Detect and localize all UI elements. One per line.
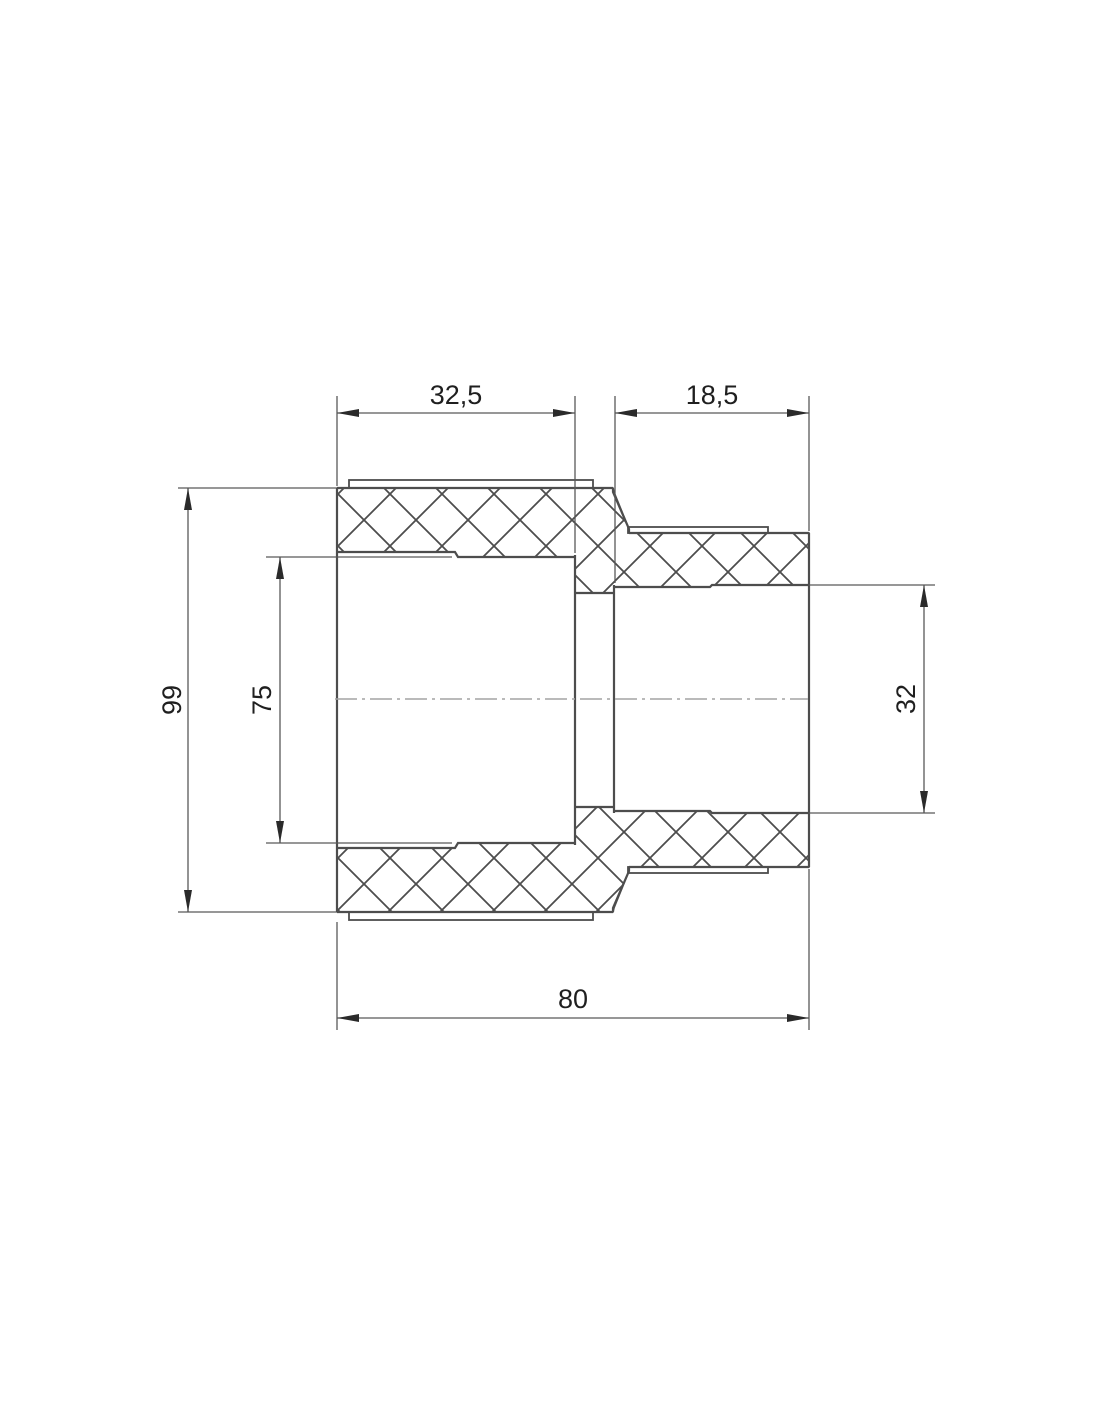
dimension-left-bore: 75	[247, 557, 284, 843]
left-bottom-lip	[349, 912, 593, 920]
dim-label-right-socket-depth: 18,5	[686, 380, 739, 410]
dimension-overall-length: 80	[337, 984, 809, 1022]
dim-label-left-bore: 75	[247, 685, 277, 715]
dim-label-overall-length: 80	[558, 984, 588, 1014]
fitting-section-drawing: 32,5 18,5 99 75 32	[0, 0, 1100, 1422]
hatched-wall-top	[337, 488, 809, 593]
dimension-right-bore: 32	[891, 585, 928, 813]
dim-label-outer-diameter: 99	[157, 685, 187, 715]
dim-label-left-socket-depth: 32,5	[430, 380, 483, 410]
dim-label-right-bore: 32	[891, 684, 921, 714]
dimension-right-socket-depth: 18,5	[615, 380, 809, 417]
technical-drawing-page: 32,5 18,5 99 75 32	[0, 0, 1100, 1422]
dimension-outer-diameter: 99	[157, 488, 192, 912]
dimension-left-socket-depth: 32,5	[337, 380, 575, 417]
left-top-lip	[349, 480, 593, 488]
hatched-wall-bottom	[337, 807, 809, 912]
